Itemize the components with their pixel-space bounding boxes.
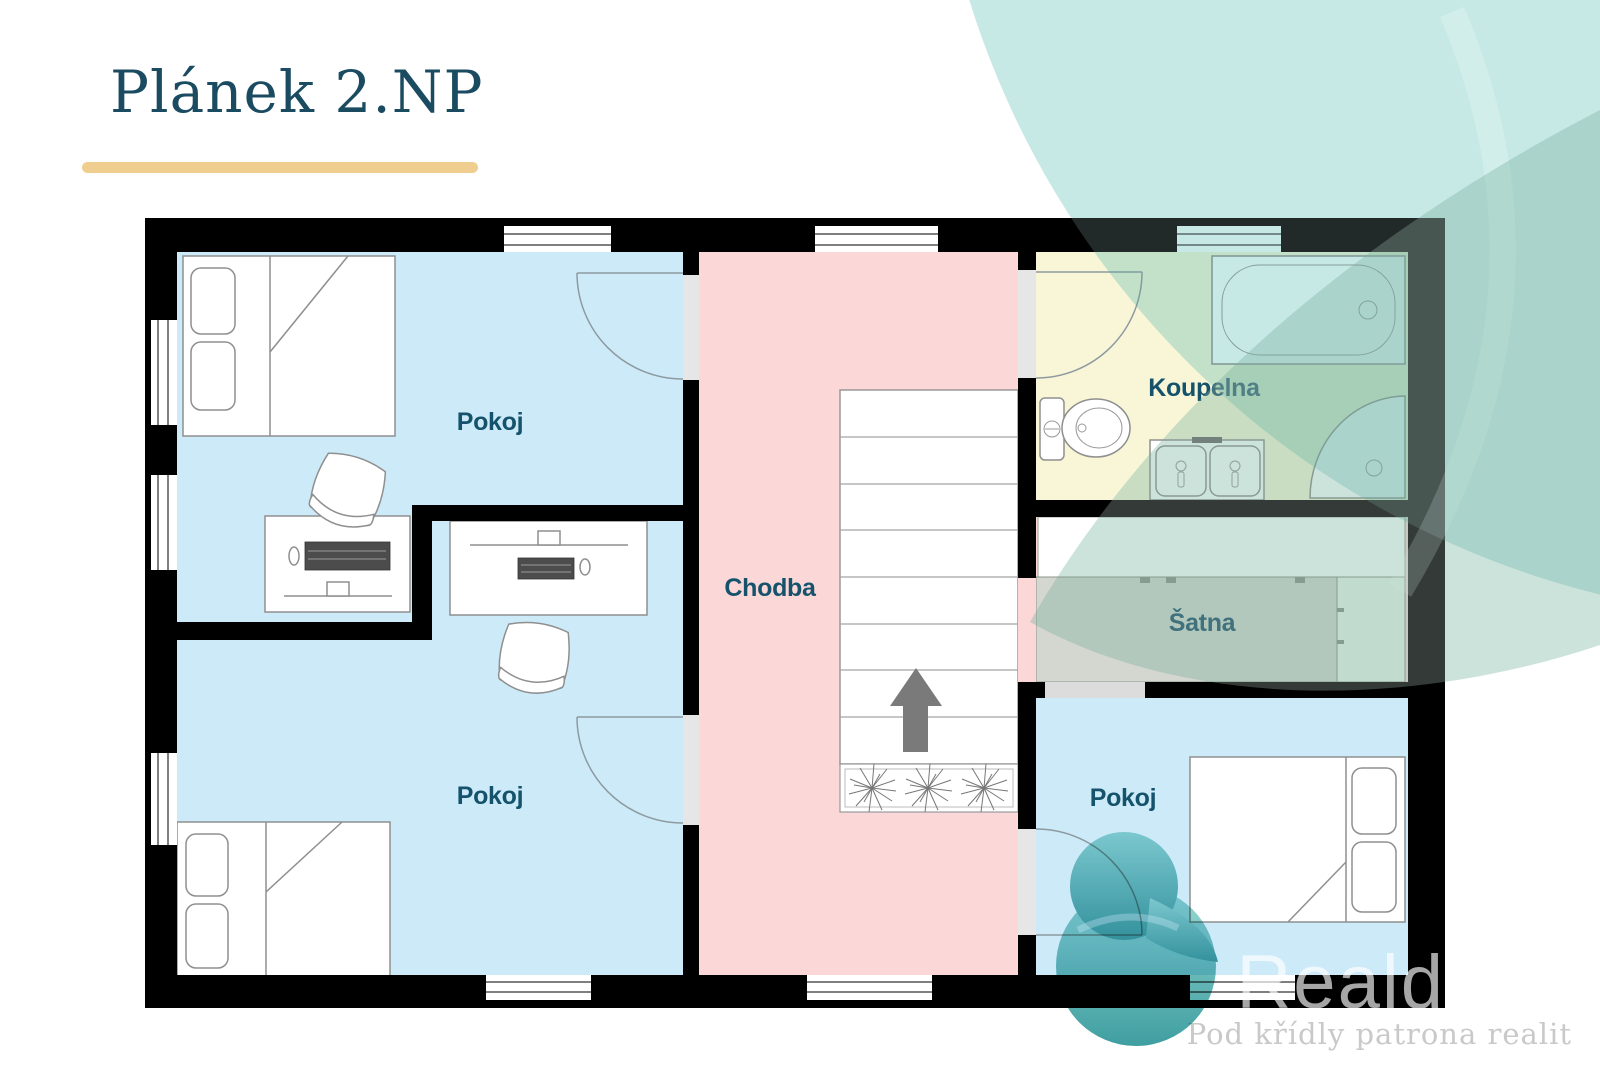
window [815, 226, 938, 252]
mouse-icon [289, 547, 299, 565]
stairs [840, 390, 1018, 764]
watermark-tagline: Pod křídly patrona realit [1187, 1017, 1572, 1051]
window [151, 475, 177, 570]
bed [177, 822, 390, 977]
desk [450, 521, 647, 615]
bed [1190, 757, 1405, 922]
keyboard-icon [518, 558, 574, 579]
window [486, 975, 591, 1000]
desk [265, 516, 410, 612]
room-label-pokoj-top-left: Pokoj [457, 408, 524, 436]
window [151, 753, 177, 845]
room-label-pokoj-bottom-left: Pokoj [457, 782, 524, 810]
bed [183, 256, 395, 436]
wall-alcove-vertical [412, 505, 432, 640]
floor-plan: Pokoj Pokoj Chodba Koupelna Šatna Pokoj … [0, 0, 1600, 1066]
watermark-brand: Reald [1236, 940, 1445, 1025]
wall-room-divider [145, 622, 430, 640]
window [807, 975, 932, 1000]
window [504, 226, 611, 252]
window [151, 320, 177, 425]
keyboard-icon [305, 542, 390, 570]
wall-alcove-top [412, 505, 699, 521]
mouse-icon [580, 559, 590, 575]
room-label-pokoj-bottom-right: Pokoj [1090, 784, 1157, 812]
presentation-slide: Plánek 2.NP [0, 0, 1600, 1066]
toilet [1040, 398, 1130, 460]
room-label-chodba: Chodba [724, 574, 817, 602]
planter [840, 764, 1018, 812]
satna-pokoj-passage [1045, 682, 1145, 698]
